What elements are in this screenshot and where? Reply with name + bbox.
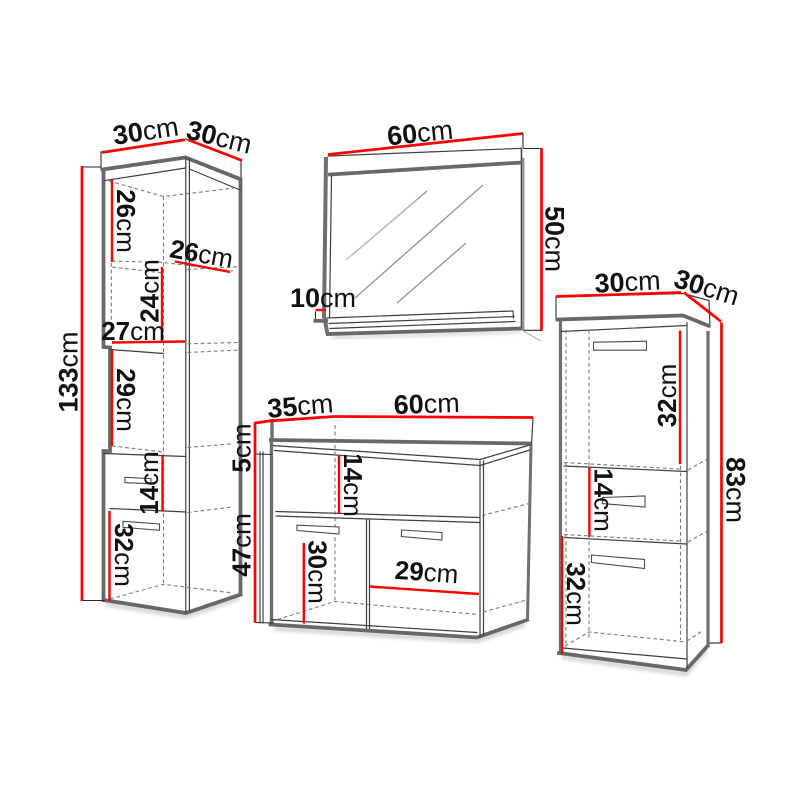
svg-text:14cm: 14cm bbox=[338, 453, 368, 517]
svg-text:26cm: 26cm bbox=[111, 189, 141, 253]
svg-text:14cm: 14cm bbox=[589, 468, 619, 532]
svg-text:10cm: 10cm bbox=[290, 283, 356, 313]
svg-text:32cm: 32cm bbox=[652, 364, 682, 428]
svg-text:32cm: 32cm bbox=[561, 562, 591, 626]
svg-text:47cm: 47cm bbox=[227, 513, 257, 577]
svg-text:24cm: 24cm bbox=[135, 259, 165, 323]
svg-text:30cm: 30cm bbox=[594, 265, 662, 298]
svg-text:83cm: 83cm bbox=[721, 457, 751, 523]
svg-text:60cm: 60cm bbox=[393, 388, 460, 420]
svg-text:50cm: 50cm bbox=[540, 206, 570, 272]
svg-text:35cm: 35cm bbox=[266, 388, 334, 424]
svg-text:5cm: 5cm bbox=[227, 423, 257, 472]
svg-text:133cm: 133cm bbox=[54, 331, 84, 412]
svg-text:29cm: 29cm bbox=[111, 368, 141, 432]
svg-text:14cm: 14cm bbox=[134, 451, 164, 515]
svg-text:29cm: 29cm bbox=[394, 555, 460, 589]
svg-text:30cm: 30cm bbox=[303, 540, 333, 604]
svg-text:32cm: 32cm bbox=[109, 523, 139, 587]
svg-text:27cm: 27cm bbox=[101, 316, 165, 346]
